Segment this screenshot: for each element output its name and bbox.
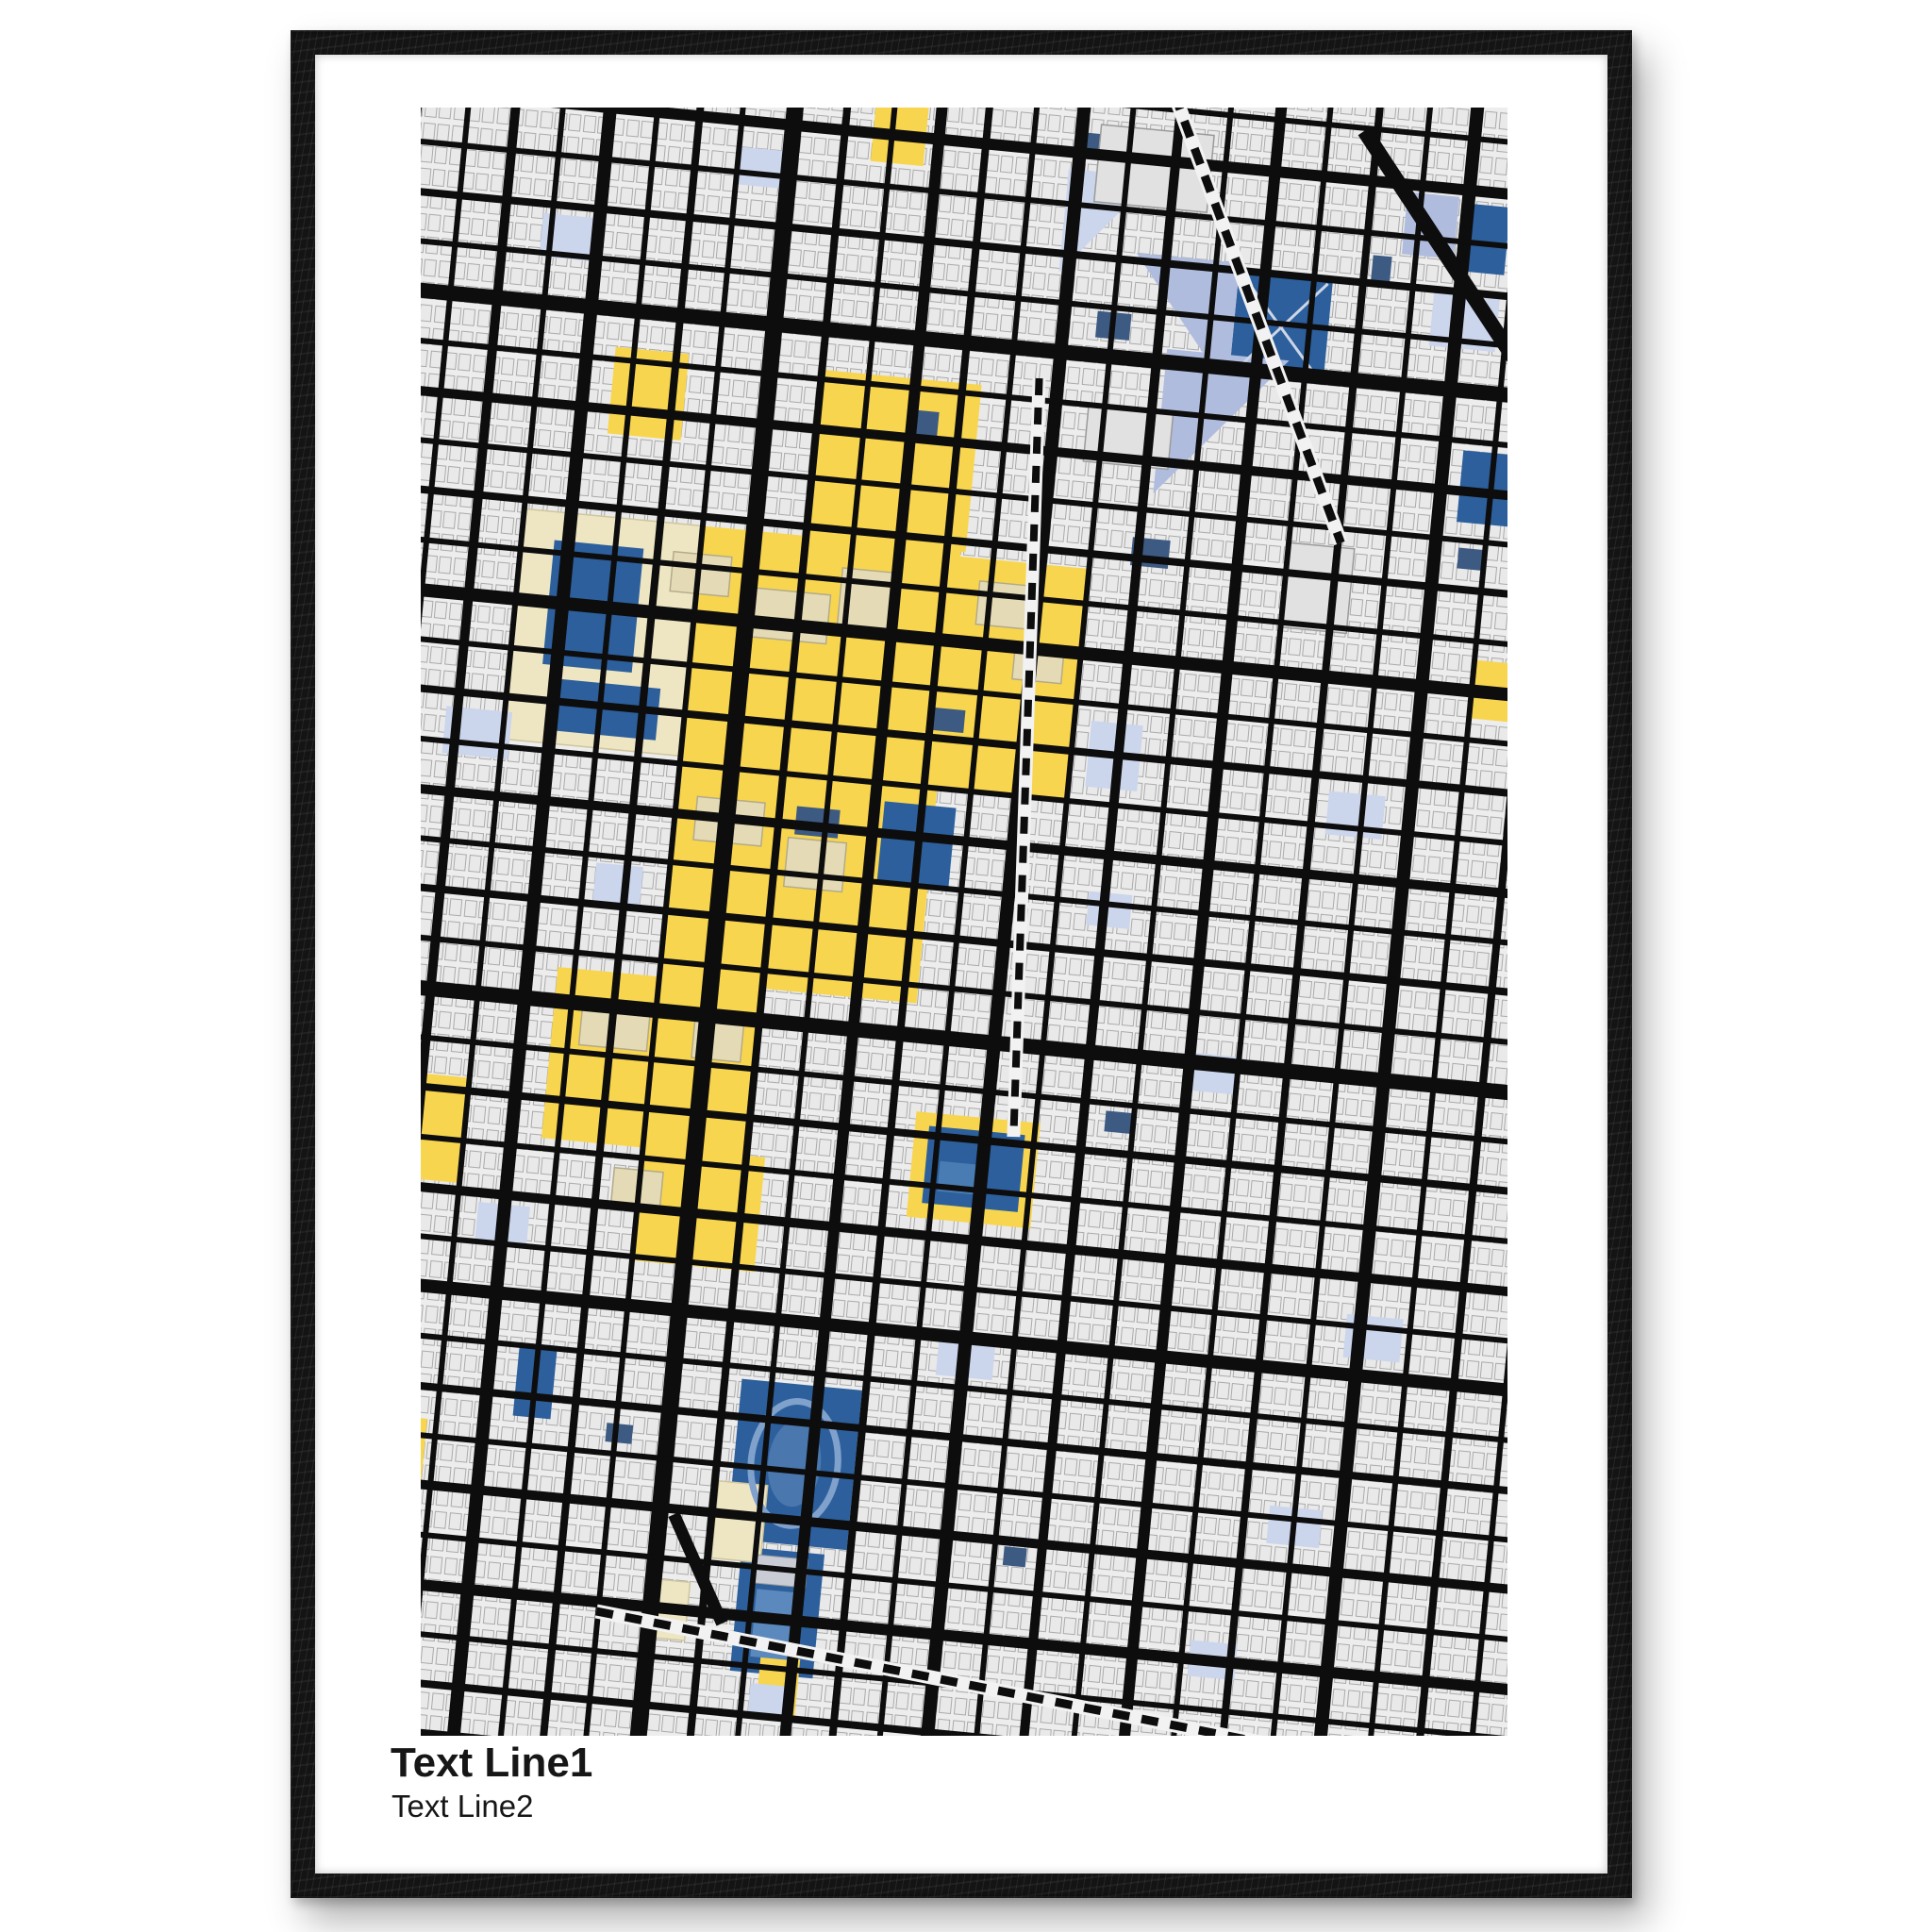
city-map-graphic: [421, 108, 1507, 1736]
poster-mat: Text Line1 Text Line2: [315, 55, 1607, 1874]
poster-title-text: Text Line1: [391, 1740, 592, 1786]
product-mockup-stage: Text Line1 Text Line2: [0, 0, 1932, 1932]
poster-subtitle-text: Text Line2: [391, 1790, 592, 1824]
map-print-area: [421, 108, 1507, 1736]
poster-frame: Text Line1 Text Line2: [291, 30, 1632, 1898]
poster-caption: Text Line1 Text Line2: [391, 1740, 592, 1824]
map-rotated-layer: [421, 108, 1507, 1736]
